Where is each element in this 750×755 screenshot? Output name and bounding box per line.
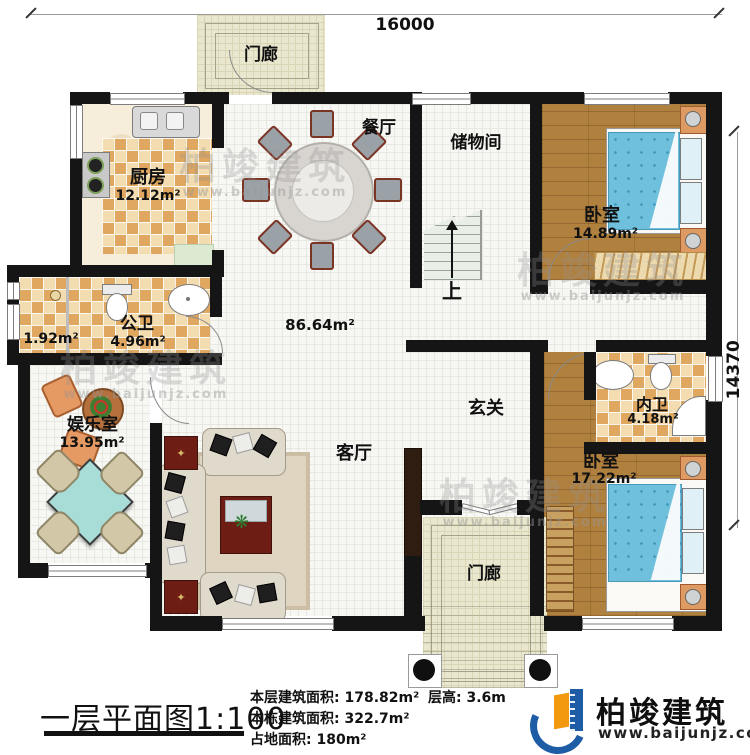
wall bbox=[544, 616, 582, 631]
stairs-rail bbox=[480, 210, 482, 280]
window bbox=[7, 304, 20, 340]
stat-value: 322.7m² bbox=[344, 711, 409, 727]
wall bbox=[7, 265, 224, 277]
dining-chair bbox=[310, 242, 334, 270]
wall bbox=[706, 92, 722, 356]
bedroom1-label: 卧室 bbox=[562, 206, 642, 227]
floor-plan-canvas: 16000 14370 bbox=[0, 0, 750, 755]
stat-land-area: 占地面积: 180m² bbox=[250, 732, 366, 748]
nightstand bbox=[680, 106, 708, 134]
bedroom1-rug bbox=[594, 252, 708, 280]
window bbox=[582, 618, 674, 630]
dim-tick bbox=[25, 7, 36, 18]
stairs-arrow bbox=[451, 228, 453, 278]
dining-chair bbox=[242, 178, 270, 202]
wall bbox=[530, 280, 548, 294]
window bbox=[222, 618, 334, 630]
shower-area-label: 1.92m² bbox=[22, 331, 80, 347]
door-arc-entertainment bbox=[150, 377, 189, 424]
stat-label: 本栋建筑面积: bbox=[250, 711, 340, 727]
open-area-label: 86.64m² bbox=[276, 317, 364, 334]
wall bbox=[596, 340, 722, 352]
entertainment-label: 娱乐室 bbox=[50, 416, 135, 436]
bed-blanket-fold bbox=[640, 484, 680, 580]
wall bbox=[18, 563, 48, 578]
stat-value: 180m² bbox=[316, 732, 366, 748]
coffee-table-plant: ❋ bbox=[234, 514, 249, 532]
dining-chair bbox=[310, 110, 334, 138]
porch-bottom-label: 门廊 bbox=[448, 565, 520, 585]
wall bbox=[212, 92, 224, 148]
nightstand bbox=[680, 584, 708, 610]
window bbox=[48, 565, 147, 577]
company-logo-icon bbox=[530, 686, 590, 744]
window bbox=[110, 93, 185, 105]
sink-drain bbox=[186, 297, 190, 301]
ensuite-area-label: 4.18m² bbox=[617, 413, 689, 428]
entertainment-area-label: 13.95m² bbox=[48, 435, 136, 451]
bed-blanket-fold bbox=[640, 132, 678, 228]
bedroom1-area-label: 14.89m² bbox=[558, 226, 653, 242]
wall bbox=[332, 616, 425, 631]
dim-tick bbox=[713, 7, 724, 18]
wall bbox=[7, 353, 222, 365]
public-bath-area-label: 4.96m² bbox=[98, 334, 178, 350]
foyer-label: 玄关 bbox=[450, 399, 522, 420]
storage-label: 储物间 bbox=[438, 134, 514, 154]
wall bbox=[530, 92, 542, 280]
wall bbox=[70, 157, 82, 265]
dining-table-top bbox=[292, 160, 354, 222]
wall bbox=[406, 340, 548, 352]
bed-pillow bbox=[682, 488, 704, 530]
dining-label: 餐厅 bbox=[348, 119, 410, 139]
wall bbox=[530, 352, 544, 616]
wall bbox=[590, 280, 722, 294]
dimension-top-label: 16000 bbox=[360, 16, 450, 36]
stat-label: 本层建筑面积: bbox=[250, 690, 340, 706]
wall bbox=[584, 352, 596, 400]
wall bbox=[404, 556, 422, 616]
sofa-pillow bbox=[165, 521, 186, 542]
company-logo-url: www.baijunjz.com bbox=[598, 724, 750, 742]
logo-tower-blue bbox=[570, 689, 583, 731]
stat-building-area: 本栋建筑面积: 322.7m² bbox=[250, 711, 410, 727]
wall bbox=[70, 92, 82, 105]
wall bbox=[706, 400, 722, 631]
title-underline bbox=[44, 731, 244, 736]
bed-pillow bbox=[680, 138, 702, 180]
title-block: 一层平面图1:100 本层建筑面积: 178.82m² 层高: 3.6m 本栋建… bbox=[0, 684, 750, 755]
window bbox=[584, 93, 670, 105]
wardrobe bbox=[546, 506, 574, 612]
porch-top-label: 门廊 bbox=[225, 46, 297, 66]
stat-floor-area: 本层建筑面积: 178.82m² bbox=[250, 690, 419, 706]
window bbox=[412, 93, 471, 105]
porch-column bbox=[529, 659, 551, 681]
wall bbox=[210, 277, 222, 317]
stat-value: 178.82m² bbox=[344, 690, 419, 706]
bathroom-sink bbox=[592, 360, 634, 390]
public-bath-label: 公卫 bbox=[102, 315, 172, 335]
bedroom2-area-label: 17.22m² bbox=[560, 471, 648, 487]
stat-label: 占地面积: bbox=[250, 732, 312, 748]
dining-chair bbox=[374, 178, 402, 202]
sofa-pillow bbox=[257, 583, 278, 604]
wall bbox=[162, 616, 222, 631]
bed-pillow bbox=[680, 182, 702, 224]
end-table: ✦ bbox=[164, 580, 198, 614]
kitchen-sink-basin bbox=[166, 112, 184, 130]
stove-burner bbox=[87, 157, 104, 174]
stat-label: 层高: bbox=[428, 690, 462, 706]
porch-column bbox=[413, 659, 435, 681]
end-table: ✦ bbox=[164, 436, 198, 470]
wall bbox=[272, 92, 412, 104]
wall bbox=[150, 423, 162, 631]
toilet-bowl bbox=[650, 362, 672, 390]
kitchen-area-label: 12.12m² bbox=[108, 188, 188, 204]
stove-burner bbox=[87, 177, 104, 194]
bedroom2-label: 卧室 bbox=[566, 452, 636, 473]
stat-value: 3.6m bbox=[466, 690, 505, 706]
bed-pillow bbox=[682, 532, 704, 574]
wall bbox=[517, 500, 530, 515]
stairs-arrow-head bbox=[446, 220, 458, 230]
stairs-up-label: 上 bbox=[434, 280, 470, 303]
wall bbox=[420, 500, 462, 515]
sofa-pillow bbox=[167, 545, 188, 566]
hand-shower bbox=[50, 290, 61, 301]
logo-tower-orange bbox=[554, 693, 569, 730]
wall bbox=[410, 92, 422, 288]
kitchen-label: 厨房 bbox=[113, 168, 183, 189]
wall bbox=[212, 250, 224, 277]
stat-height: 层高: 3.6m bbox=[428, 690, 506, 706]
kitchen-sink-basin bbox=[140, 112, 158, 130]
window bbox=[708, 356, 723, 402]
dimension-right-label: 14370 bbox=[725, 325, 745, 415]
window bbox=[70, 105, 83, 159]
wall bbox=[469, 92, 584, 104]
living-label: 客厅 bbox=[318, 444, 390, 465]
window bbox=[7, 282, 20, 300]
wall bbox=[18, 365, 30, 578]
nightstand bbox=[680, 456, 708, 480]
